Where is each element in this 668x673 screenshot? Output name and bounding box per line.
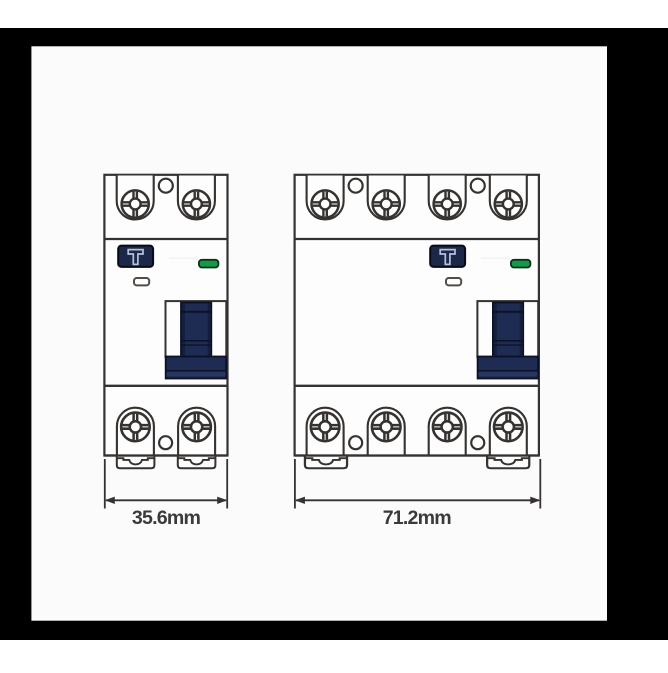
- svg-text:35.6mm: 35.6mm: [132, 507, 201, 529]
- svg-text:71.2mm: 71.2mm: [383, 507, 452, 529]
